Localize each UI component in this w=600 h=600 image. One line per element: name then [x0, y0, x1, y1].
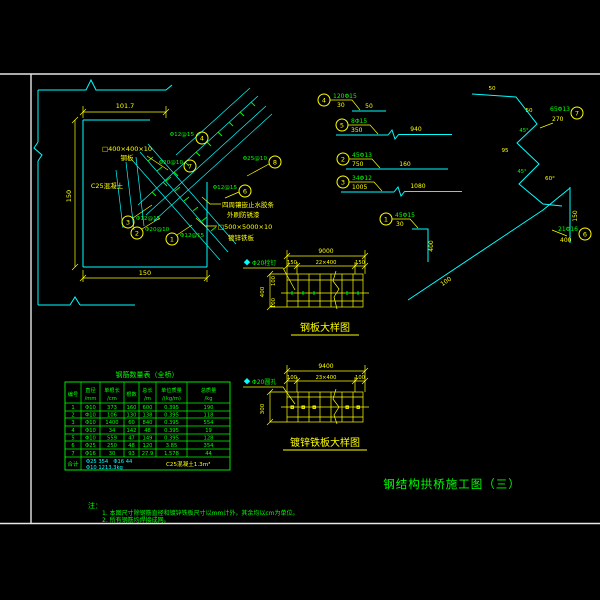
zigzag-dim: 60°: [545, 176, 555, 182]
bar-length: 1080: [410, 183, 425, 190]
table-cell: 27.9: [142, 451, 154, 457]
table-header: 单位质量: [161, 386, 182, 394]
table-cell: 30: [109, 451, 116, 457]
zigzag-dim: 50: [525, 108, 533, 114]
table-header-unit: /cm: [107, 396, 117, 402]
plate-dim-c: 22×400: [316, 260, 337, 266]
callout-label: Φ12@15: [136, 216, 161, 222]
table-header: 直径: [85, 386, 95, 394]
rebar-table-title: 钢筋数量表（全桥）: [116, 370, 179, 379]
table-cells: 编号直径/mm单根长/cm根数总长/m单位质量/(kg/m)总质量/kg1Φ10…: [68, 386, 216, 457]
table-cell: 48: [128, 443, 135, 449]
bar-mark: 2: [341, 156, 345, 164]
zigzag-dim: 50: [488, 86, 496, 92]
stud-label: Φ20栓钉: [252, 259, 276, 267]
table-header-unit: /mm: [85, 396, 97, 402]
callout-label: Φ12@15: [180, 233, 205, 239]
cad-drawing-sheet: 101.7 150 150 □400×400×10 钢板 C25混凝土 四周镶嵌…: [0, 0, 600, 600]
table-cell: 554: [204, 420, 215, 426]
table-header-unit: /kg: [204, 396, 212, 402]
galvanized-size-label: □500×5000×10: [218, 223, 272, 231]
bar-dim: 1005: [352, 184, 367, 191]
table-cell: 93: [128, 451, 135, 457]
detail-dimensions: 101.7 150 150: [65, 102, 210, 282]
bar-length: 400: [428, 240, 435, 252]
bar-length: 940: [410, 126, 422, 133]
zigzag-angle: 45°: [517, 169, 527, 175]
seal-label-2: 外刷防锈漆: [227, 210, 260, 219]
table-cell: 138: [143, 413, 153, 419]
hole-label: Φ20圆孔: [252, 378, 276, 386]
bar-mark: 7: [575, 110, 579, 118]
note-item-1: 1. 本图尺寸除钢筋直径和镀锌铁板尺寸以mm计外，其余均以cm为单位。: [102, 509, 298, 517]
table-cell: 5: [71, 436, 74, 442]
bar-spec: 8Φ15: [351, 118, 367, 125]
vert-dim: 150: [572, 210, 579, 222]
notes-head: 注：: [88, 501, 102, 510]
plate-dim-left: 400: [260, 286, 266, 297]
table-header-unit: /(kg/m): [162, 396, 181, 402]
table-cell: 106: [107, 413, 117, 419]
callout-mark: 3: [126, 219, 130, 227]
anchor-detail: 101.7 150 150 □400×400×10 钢板 C25混凝土 四周镶嵌…: [34, 80, 281, 305]
bar-dim: 400: [560, 237, 572, 244]
callout-mark: 7: [188, 163, 192, 171]
table-cell: 118: [204, 413, 214, 419]
table-header: 总质量: [201, 386, 217, 394]
table-cell: 3: [71, 420, 74, 426]
table-cell: 1: [71, 405, 74, 411]
bar-dim: 30: [337, 102, 345, 109]
table-cell: 0.395: [164, 436, 179, 442]
steel-plate-detail: 9000 150 22×400 150 400 100 100 Φ20栓钉 钢板…: [243, 248, 369, 335]
sheet-title: 钢结构拱桥施工图（三）: [383, 477, 521, 491]
bar-length: 160: [399, 161, 411, 168]
galvanized-label: 镀锌铁板: [228, 233, 255, 242]
bar-spec: 45Φ13: [352, 152, 372, 159]
zinc-dim-c: 23×400: [316, 375, 337, 381]
dim-bottom: 150: [139, 269, 151, 277]
stud-diamond-icon: [244, 378, 250, 384]
table-cell: 3.85: [166, 443, 178, 449]
notes: 注： 1. 本图尺寸除钢筋直径和镀锌铁板尺寸以mm计外，其余均以cm为单位。 2…: [88, 501, 298, 524]
concrete-label: C25混凝土: [91, 181, 124, 190]
bar-spec: 65Φ13: [550, 106, 570, 113]
table-header: 编号: [68, 390, 78, 398]
table-cell: 190: [204, 405, 214, 411]
plate-grid: [287, 274, 363, 307]
table-header: 总长: [142, 386, 153, 394]
table-cell: Φ10: [85, 413, 96, 419]
table-cell: 130: [127, 413, 137, 419]
table-cell: 373: [107, 405, 117, 411]
note-item-2: 2. 所有钢筋均焊接成网。: [102, 516, 170, 524]
table-cell: 4: [71, 428, 75, 434]
table-cell: 19: [205, 428, 212, 434]
table-cell: 559: [107, 436, 117, 442]
bar-spec: 120Φ15: [333, 93, 357, 100]
table-cell: 600: [143, 405, 153, 411]
table-cell: 128: [204, 436, 214, 442]
bar-dim: 270: [552, 116, 564, 123]
table-concrete-note: C25混凝土1.3m³: [166, 460, 210, 468]
bar-mark: 5: [340, 122, 344, 130]
callout-mark: 1: [170, 236, 174, 244]
callout-mark: 6: [243, 188, 247, 196]
callout-label: Φ20@10: [159, 160, 184, 166]
table-cell: Φ10: [85, 428, 96, 434]
table-cell: Φ10: [85, 436, 96, 442]
table-cell: 60: [128, 420, 135, 426]
plate-dim-l: 150: [287, 260, 297, 266]
zinc-dim-l: 100: [287, 375, 297, 381]
callout-label: Φ12@15: [213, 185, 238, 191]
bar-dim: 30: [396, 221, 404, 228]
bar-dim: 350: [351, 127, 363, 134]
table-cell: 6: [71, 443, 74, 449]
table-cell: 0.395: [164, 405, 179, 411]
table-cell: 0.395: [164, 420, 179, 426]
bar-mark: 6: [583, 231, 587, 239]
table-header-unit: /m: [144, 396, 151, 402]
table-cell: Φ10: [85, 405, 96, 411]
bar-mark: 4: [322, 97, 326, 105]
table-cell: 250: [107, 443, 117, 449]
plate-dim-top: 9000: [318, 248, 333, 255]
table-cell: 0.395: [164, 428, 179, 434]
bar-spec: 21Φ16: [558, 226, 578, 233]
bar-dim: 750: [352, 161, 364, 168]
table-total-label: 合计: [67, 460, 79, 468]
plate-dim-left-b: 100: [271, 298, 277, 308]
table-cell: 34: [109, 428, 116, 434]
zinc-dim-left: 300: [260, 403, 266, 414]
plate-dim-r: 150: [355, 260, 365, 266]
callout-label: Φ12@15: [170, 132, 195, 138]
bar-mark: 3: [341, 179, 345, 187]
table-cell: 47: [128, 436, 135, 442]
bar-shape-schedule: 4 120Φ15 30 50 5 8Φ15 350 940 2 45Φ13 75…: [318, 86, 591, 300]
zigzag-dim: 95: [501, 148, 509, 154]
rebar-table: 钢筋数量表（全桥） 编号直径/mm单根长/cm根数总长/m单位质量/(kg/m)…: [65, 370, 230, 471]
table-cell: 149: [143, 436, 153, 442]
table-cell: 0.395: [164, 413, 179, 419]
bar-spec: 45Φ15: [395, 212, 415, 219]
zinc-dim-r: 100: [355, 375, 365, 381]
table-cell: 160: [127, 405, 137, 411]
table-cell: 7: [71, 451, 74, 457]
bar-length: 50: [365, 103, 373, 110]
table-cell: 48: [144, 428, 151, 434]
table-cell: 354: [204, 443, 215, 449]
stud-diamond-icon: [244, 259, 250, 265]
galvanized-plate-detail: 9400 100 23×400 100 300 Φ20圆孔 镀锌铁板大样图: [243, 363, 369, 450]
seal-label-1: 四周镶嵌止水胶条: [222, 200, 275, 209]
zigzag-angle: 45°: [519, 128, 529, 134]
callout-label: Φ25@10: [243, 156, 268, 162]
cad-drawing: 101.7 150 150 □400×400×10 钢板 C25混凝土 四周镶嵌…: [0, 0, 600, 600]
zinc-dim-top: 9400: [318, 363, 333, 370]
plate-size-label: □400×400×10: [102, 145, 152, 153]
table-cell: Φ10: [85, 420, 96, 426]
bar-spec: 34Φ12: [352, 175, 372, 182]
table-cell: 142: [127, 428, 137, 434]
plate-label: 钢板: [121, 153, 135, 162]
table-cell: 44: [205, 451, 212, 457]
table-cell: Φ25: [85, 443, 96, 449]
plate-dim-left-a: 100: [271, 276, 277, 286]
plate-detail-title: 钢板大样图: [300, 321, 350, 334]
table-cell: 120: [143, 443, 153, 449]
table-cell: 840: [143, 420, 153, 426]
table-cell: 1.578: [164, 451, 179, 457]
bar-mark: 1: [384, 216, 388, 224]
table-cell: 2: [71, 413, 74, 419]
callout-mark: 2: [135, 230, 139, 238]
table-cell: 1400: [105, 420, 118, 426]
callout-mark: 4: [200, 135, 204, 143]
table-total-line2: Φ10 1213.3kg: [86, 465, 123, 471]
dim-left: 150: [65, 190, 73, 202]
dim-top: 101.7: [116, 102, 135, 110]
table-cell: Φ16: [85, 451, 96, 457]
callout-mark: 8: [273, 159, 277, 167]
table-header: 根数: [126, 390, 137, 398]
callout-label: Φ20@10: [145, 227, 170, 233]
table-header: 单根长: [104, 386, 120, 394]
zinc-detail-title: 镀锌铁板大样图: [290, 436, 360, 449]
